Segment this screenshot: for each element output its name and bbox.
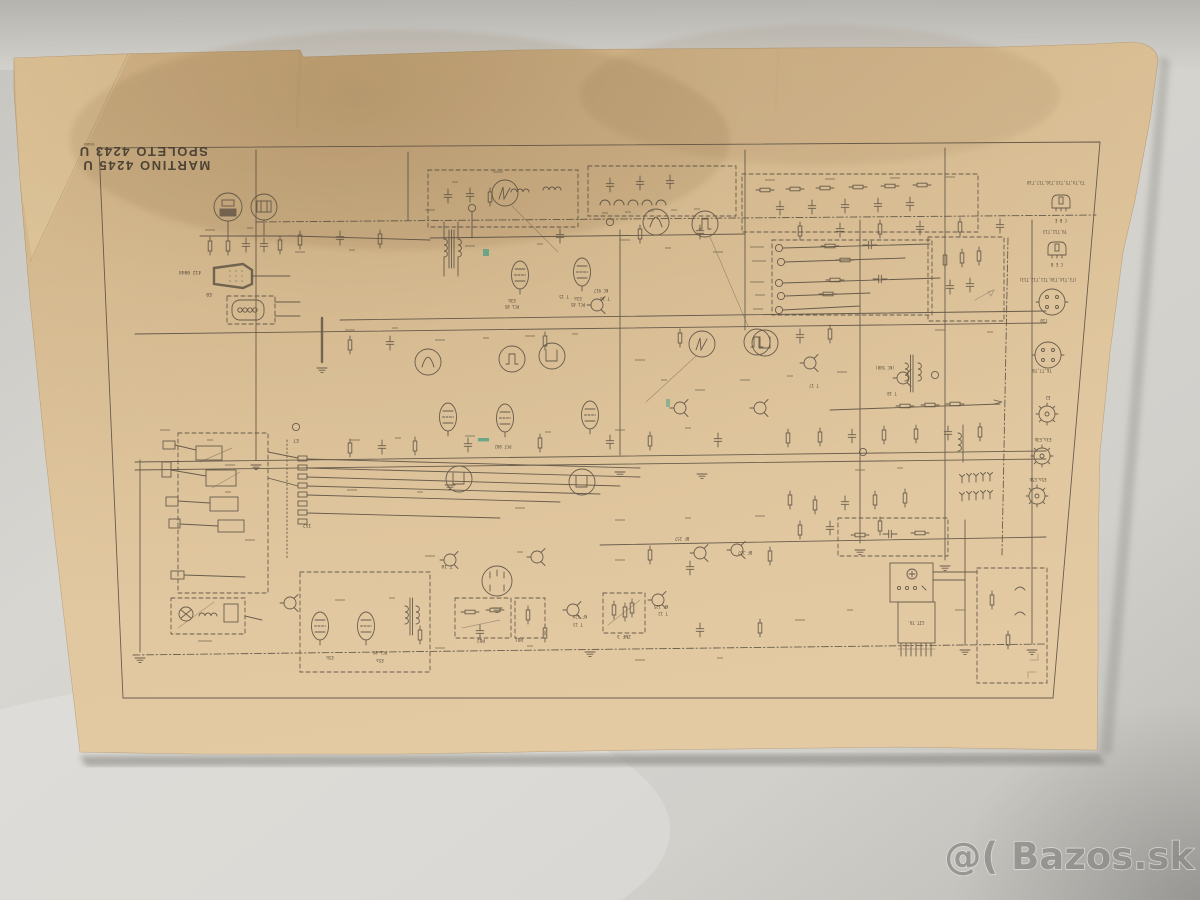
title-line-2: SPOLETO 4243 U [78, 144, 208, 159]
label-pd1: PD1 [515, 636, 524, 642]
label-e3b: E3b [508, 298, 516, 303]
label-bf257a: BF 257 [674, 536, 689, 541]
label-is2: IS2 [303, 522, 312, 528]
label-t16: T 16 [600, 296, 610, 301]
label-m1: T3,T4,T5,T15,T16,T17,T18 [1027, 180, 1085, 185]
label-t12: T 12 [658, 611, 668, 616]
label-m4: T6,T7,T8 [1032, 368, 1052, 373]
label-kc508: (KC 508) [875, 365, 894, 370]
scene-svg: MARTINO 4245 U SPOLETO 4243 U 05465 412 … [0, 0, 1200, 900]
label-t13: T 13 [573, 622, 583, 627]
watermark: @( Bazos.sk [944, 835, 1195, 878]
label-e5a: E5a [376, 658, 384, 663]
label-m7: E5a,E5b [1029, 477, 1046, 482]
label-e5b: E5b [326, 655, 334, 660]
title-line-1: MARTINO 4245 U [82, 158, 211, 173]
label-m6: E3a,E3b [1034, 437, 1051, 442]
label-t18: T 18 [887, 391, 897, 396]
label-e7: E7 [293, 437, 299, 443]
label-t15: T 15 [559, 294, 569, 299]
paper-shadow [80, 754, 1105, 766]
label-pcl86: PCL 86 [372, 650, 387, 655]
label-m3: (T3,T14,T10,T11,T12,T13) [1019, 277, 1077, 282]
label-speaker-code: 412 0044 [179, 269, 201, 275]
label-pd2: PD2 [477, 637, 486, 643]
label-kf125: KF 125 [653, 604, 668, 609]
label-pcl85a: PCL 85 [570, 302, 585, 307]
label-t17: T 17 [809, 383, 819, 388]
label-m2p: C E B [1050, 262, 1063, 267]
label-sittr: SÍŤ.TR. [908, 620, 925, 625]
corner-code: 05465 [84, 142, 95, 146]
label-pcl85b: PCL 85 [504, 304, 519, 309]
label-pcf802: PCF 802 [494, 444, 511, 449]
label-m3p: T10 [1040, 318, 1048, 323]
label-kc917: KC 917 [593, 288, 608, 293]
label-m5: E2 [1045, 395, 1050, 400]
label-e8: E8 [206, 291, 212, 297]
label-t10: T 10 [441, 563, 452, 569]
label-m1p: C B E [1054, 218, 1067, 223]
label-bf257b: BF 257 [737, 550, 752, 555]
label-e3a: E3a [574, 296, 582, 301]
label-m2: T9,T12,T13 [1042, 229, 1067, 234]
photo-of-schematic: MARTINO 4245 U SPOLETO 4243 U 05465 412 … [0, 0, 1200, 900]
label-znf3: ZNF 3 [617, 633, 631, 639]
label-kf124: KF 124 [572, 614, 587, 619]
